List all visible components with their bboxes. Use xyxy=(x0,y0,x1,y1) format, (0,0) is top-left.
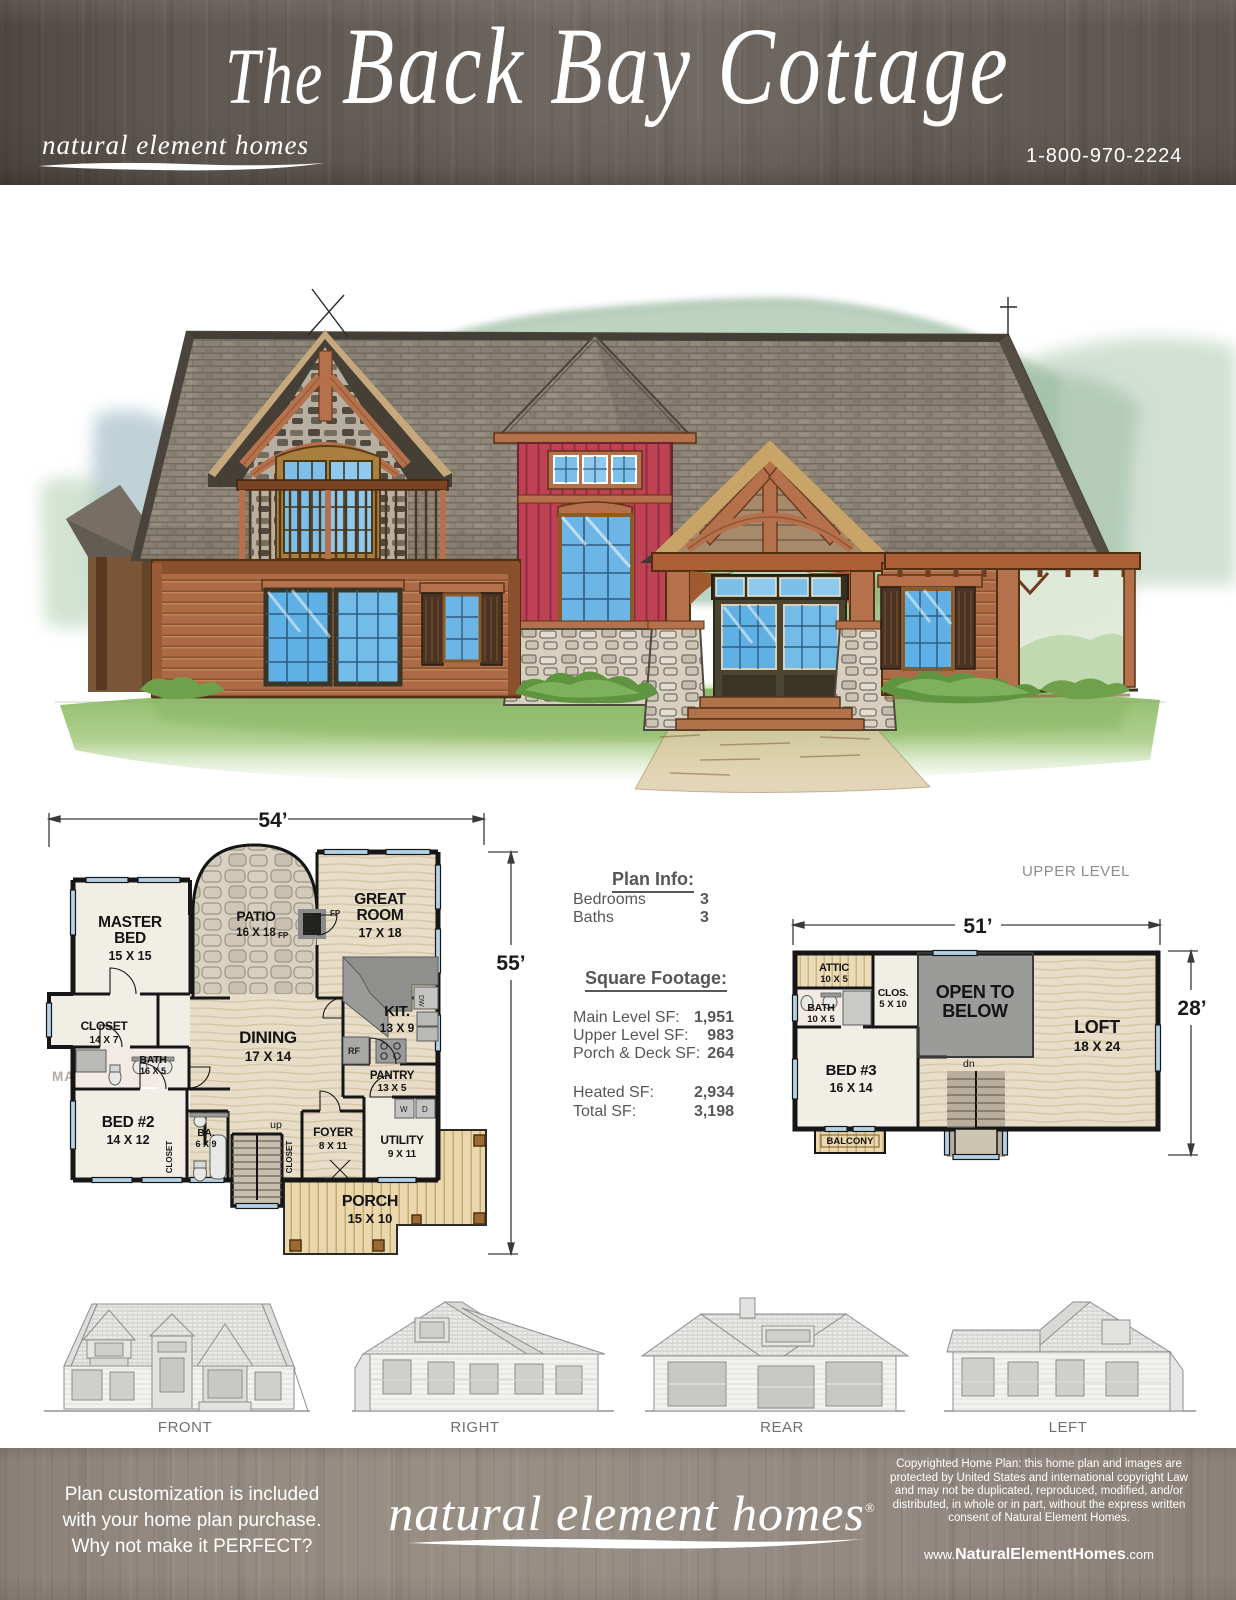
svg-text:FP: FP xyxy=(330,909,341,918)
svg-text:DINING: DINING xyxy=(239,1028,297,1047)
svg-text:W: W xyxy=(400,1105,408,1114)
svg-text:17 X 18: 17 X 18 xyxy=(358,926,401,940)
svg-text:KIT.: KIT. xyxy=(384,1003,410,1020)
svg-text:GREAT: GREAT xyxy=(354,891,406,908)
svg-text:18 X 24: 18 X 24 xyxy=(1074,1039,1121,1054)
svg-text:CLOSET: CLOSET xyxy=(165,1141,174,1174)
svg-text:15 X 15: 15 X 15 xyxy=(108,949,151,963)
svg-text:13 X 5: 13 X 5 xyxy=(378,1083,407,1094)
svg-text:BATH: BATH xyxy=(807,1002,834,1014)
svg-text:ATTIC: ATTIC xyxy=(819,962,849,974)
svg-text:BED: BED xyxy=(114,930,146,947)
svg-text:14 X 7: 14 X 7 xyxy=(90,1035,119,1046)
svg-text:15 X 10: 15 X 10 xyxy=(348,1211,393,1226)
svg-text:FOYER: FOYER xyxy=(313,1125,353,1139)
svg-text:PORCH: PORCH xyxy=(342,1193,398,1210)
svg-text:13 X 9: 13 X 9 xyxy=(380,1021,415,1035)
svg-text:17 X 14: 17 X 14 xyxy=(245,1049,292,1064)
svg-text:6 X 9: 6 X 9 xyxy=(195,1139,216,1149)
svg-text:BALCONY: BALCONY xyxy=(827,1136,875,1147)
svg-text:8 X 11: 8 X 11 xyxy=(319,1141,348,1152)
svg-text:51’: 51’ xyxy=(963,915,992,938)
svg-text:DW: DW xyxy=(417,995,424,1007)
svg-text:16 X 5: 16 X 5 xyxy=(140,1066,166,1076)
svg-text:55’: 55’ xyxy=(496,952,525,975)
svg-text:OPEN TO: OPEN TO xyxy=(936,982,1015,1002)
svg-text:28’: 28’ xyxy=(1177,997,1206,1020)
svg-text:PATIO: PATIO xyxy=(236,908,276,924)
svg-text:ROOM: ROOM xyxy=(356,907,403,924)
svg-text:CLOSET: CLOSET xyxy=(81,1019,129,1033)
svg-text:54’: 54’ xyxy=(258,809,287,832)
svg-text:14 X 12: 14 X 12 xyxy=(106,1133,149,1147)
svg-text:16 X 14: 16 X 14 xyxy=(829,1081,872,1095)
svg-text:BELOW: BELOW xyxy=(942,1001,1008,1021)
svg-text:10 X 5: 10 X 5 xyxy=(807,1014,835,1025)
svg-text:BA.: BA. xyxy=(197,1128,214,1139)
svg-text:dn: dn xyxy=(963,1058,975,1070)
svg-text:BED #2: BED #2 xyxy=(102,1114,154,1131)
svg-text:UTILITY: UTILITY xyxy=(380,1133,424,1147)
svg-text:LOFT: LOFT xyxy=(1074,1017,1120,1037)
svg-text:BATH: BATH xyxy=(139,1054,166,1066)
svg-text:CLOSET: CLOSET xyxy=(285,1141,294,1174)
svg-text:10 X 5: 10 X 5 xyxy=(820,974,848,985)
svg-text:BED #3: BED #3 xyxy=(826,1062,877,1079)
svg-text:5 X 10: 5 X 10 xyxy=(879,999,906,1010)
svg-text:RF: RF xyxy=(348,1046,360,1056)
svg-text:16 X 18: 16 X 18 xyxy=(236,927,276,939)
svg-text:D: D xyxy=(422,1105,428,1114)
svg-text:9 X 11: 9 X 11 xyxy=(388,1149,417,1160)
svg-text:FP: FP xyxy=(278,931,289,940)
svg-text:PANTRY: PANTRY xyxy=(370,1070,415,1082)
svg-text:MASTER: MASTER xyxy=(98,914,162,931)
svg-text:CLOS.: CLOS. xyxy=(878,987,909,999)
svg-text:up: up xyxy=(270,1119,282,1131)
